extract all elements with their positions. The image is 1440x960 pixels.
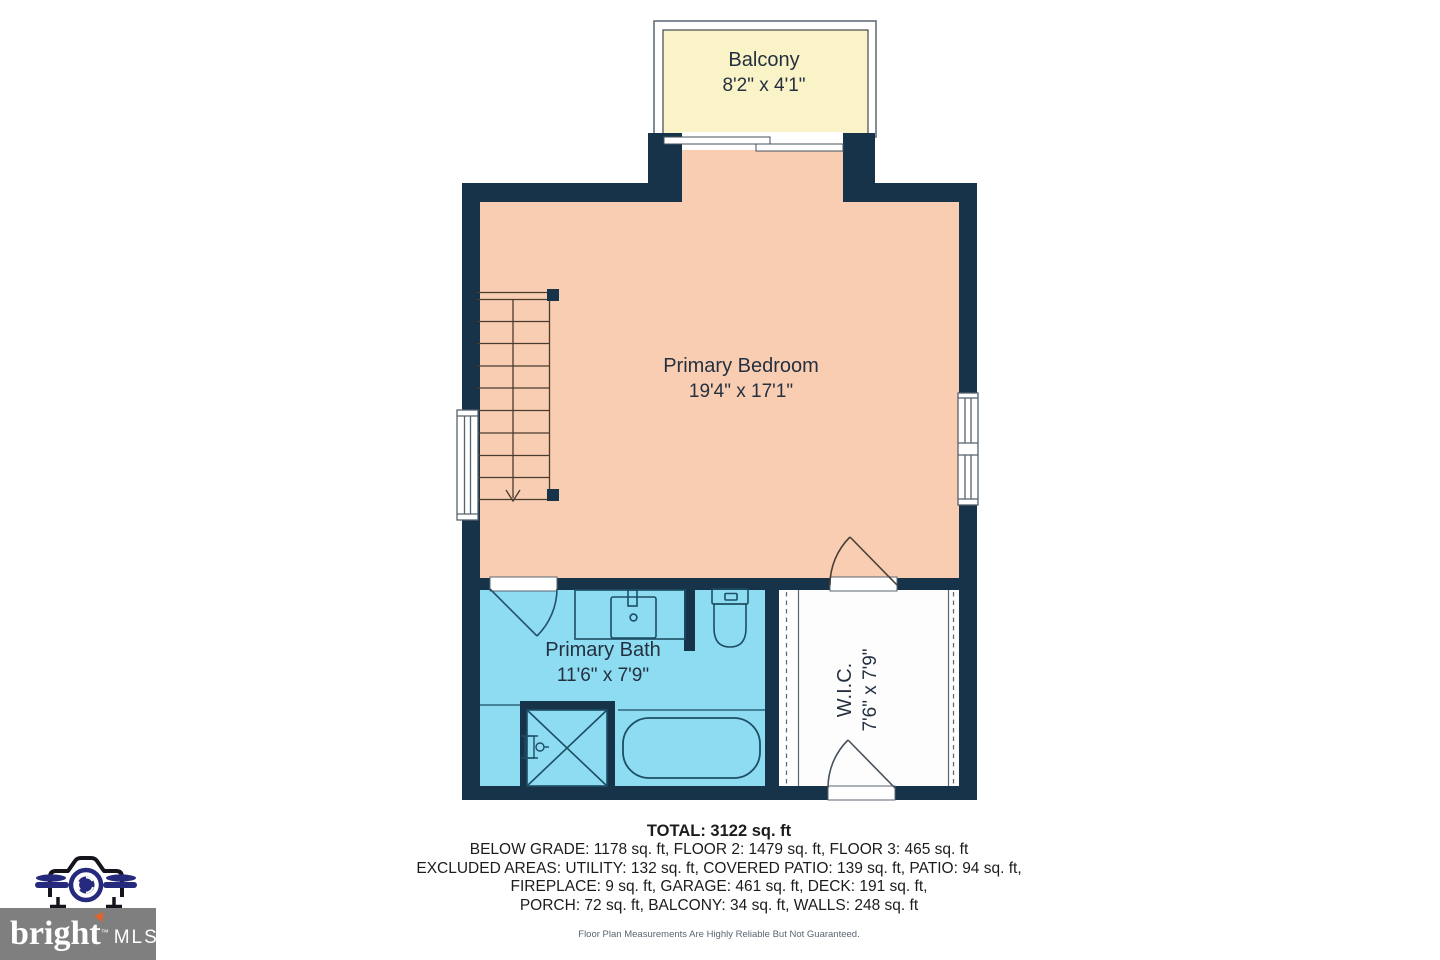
summary-line-4: PORCH: 72 sq. ft, BALCONY: 34 sq. ft, WA… xyxy=(169,897,1269,916)
primary-bath-dims: 11'6" x 7'9" xyxy=(545,663,661,688)
floor-plan-drawing xyxy=(0,0,1440,960)
bright-mls-logo: bright™MLS xyxy=(0,845,200,960)
summary-line-1: BELOW GRADE: 1178 sq. ft, FLOOR 2: 1479 … xyxy=(169,841,1269,860)
primary-bath-label: Primary Bath 11'6" x 7'9" xyxy=(545,637,661,688)
window-right xyxy=(958,393,978,505)
logo-tm: ™ xyxy=(101,928,109,937)
disclaimer-text: Floor Plan Measurements Are Highly Relia… xyxy=(578,929,859,940)
wic-name: W.I.C. xyxy=(833,648,858,731)
logo-wordmark: bright™MLS xyxy=(0,908,156,960)
wic-label: W.I.C. 7'6" x 7'9" xyxy=(833,648,883,731)
window-left xyxy=(457,410,478,520)
wic-dims: 7'6" x 7'9" xyxy=(858,648,883,731)
primary-bath-name: Primary Bath xyxy=(545,637,661,663)
logo-brand-text: bright xyxy=(10,917,101,951)
logo-suffix-text: MLS xyxy=(114,927,159,949)
drone-camera-icon xyxy=(34,851,138,913)
balcony-name: Balcony xyxy=(722,47,805,73)
area-summary: TOTAL: 3122 sq. ft BELOW GRADE: 1178 sq.… xyxy=(169,821,1269,915)
summary-line-2: EXCLUDED AREAS: UTILITY: 132 sq. ft, COV… xyxy=(169,860,1269,879)
primary-bedroom-label: Primary Bedroom 19'4" x 17'1" xyxy=(663,353,819,404)
primary-bedroom-name: Primary Bedroom xyxy=(663,353,819,379)
floor-plan-page: Balcony 8'2" x 4'1" Primary Bedroom 19'4… xyxy=(0,0,1440,960)
total-area: TOTAL: 3122 sq. ft xyxy=(169,821,1269,841)
balcony-label: Balcony 8'2" x 4'1" xyxy=(722,47,805,98)
primary-bedroom-dims: 19'4" x 17'1" xyxy=(663,379,819,404)
balcony-dims: 8'2" x 4'1" xyxy=(722,73,805,98)
summary-line-3: FIREPLACE: 9 sq. ft, GARAGE: 461 sq. ft,… xyxy=(169,878,1269,897)
